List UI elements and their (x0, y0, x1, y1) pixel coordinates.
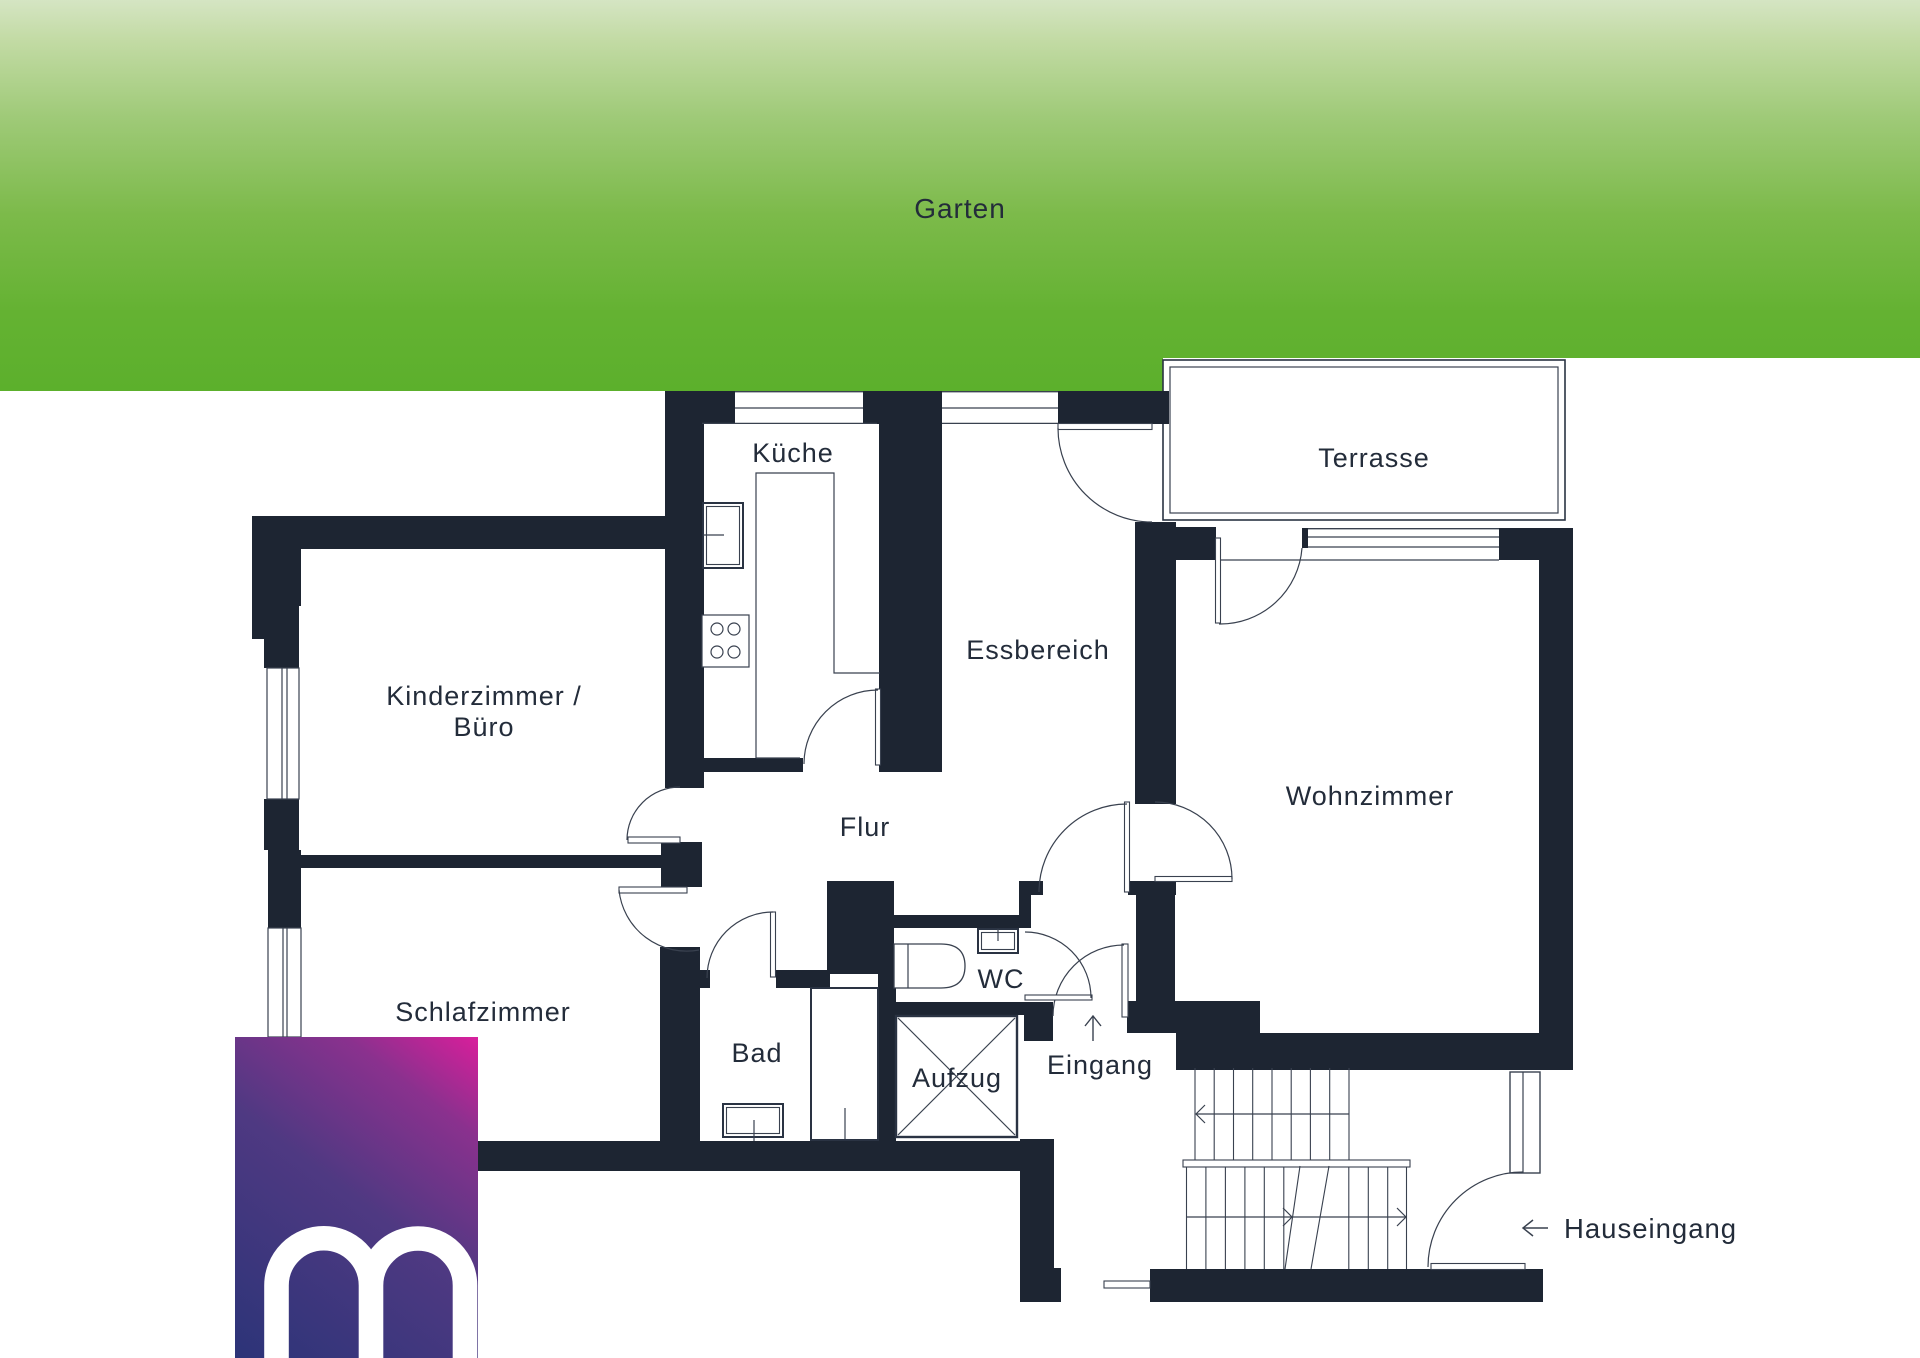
svg-text:Terrasse: Terrasse (1318, 443, 1430, 473)
svg-text:Aufzug: Aufzug (912, 1063, 1002, 1093)
svg-text:Eingang: Eingang (1047, 1050, 1153, 1080)
svg-text:Wohnzimmer: Wohnzimmer (1286, 781, 1455, 811)
svg-text:Bad: Bad (731, 1038, 782, 1068)
svg-text:Essbereich: Essbereich (966, 635, 1110, 665)
svg-text:Hauseingang: Hauseingang (1564, 1213, 1737, 1244)
svg-text:Büro: Büro (453, 712, 514, 742)
svg-text:Schlafzimmer: Schlafzimmer (395, 997, 571, 1027)
svg-text:Küche: Küche (752, 438, 834, 468)
svg-text:Garten: Garten (914, 193, 1006, 224)
svg-text:Kinderzimmer /: Kinderzimmer / (386, 681, 582, 711)
svg-text:WC: WC (978, 964, 1025, 994)
svg-text:Flur: Flur (840, 812, 891, 842)
